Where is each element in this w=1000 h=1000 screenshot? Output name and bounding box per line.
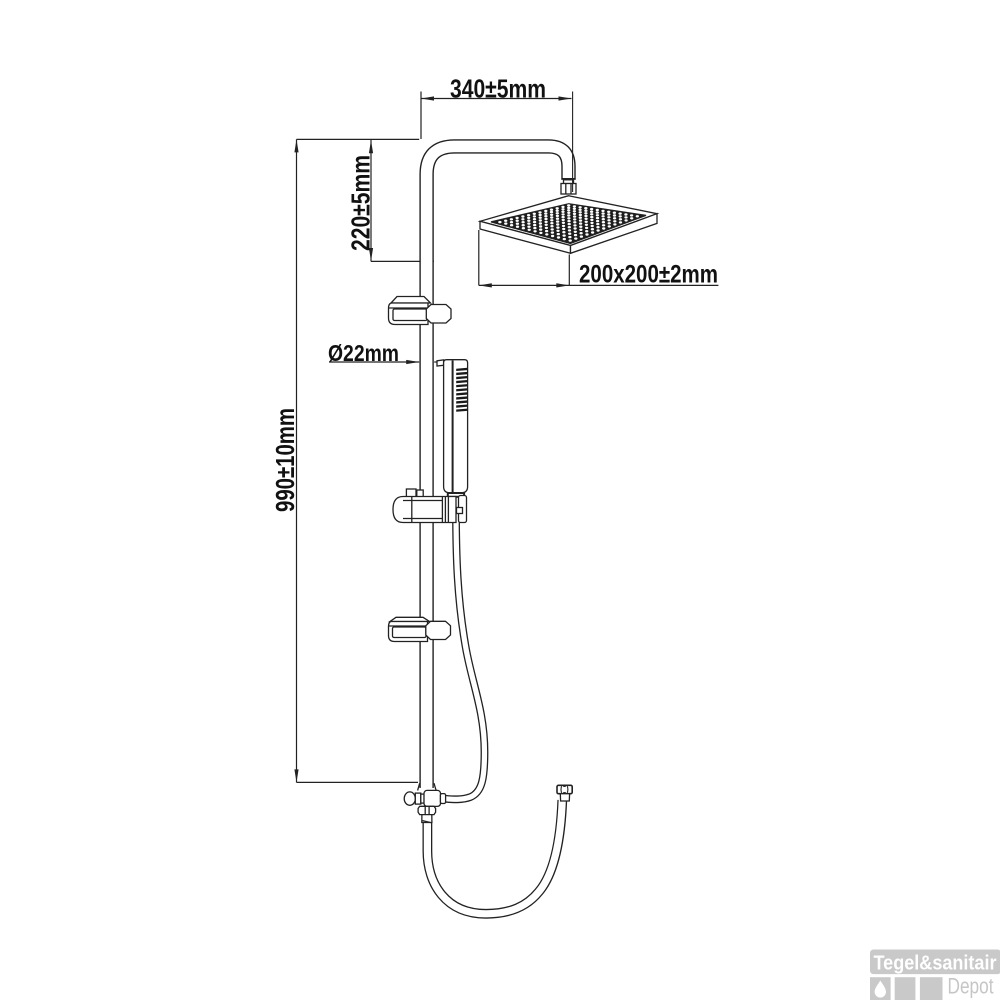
svg-text:990±10mm: 990±10mm <box>270 408 300 512</box>
svg-text:Ø22mm: Ø22mm <box>328 340 399 366</box>
svg-text:Depot: Depot <box>948 973 994 998</box>
svg-text:340±5mm: 340±5mm <box>450 74 546 104</box>
svg-text:220±5mm: 220±5mm <box>346 155 376 251</box>
svg-text:200x200±2mm: 200x200±2mm <box>579 260 718 288</box>
svg-text:Tegel&sanitair: Tegel&sanitair <box>874 952 997 975</box>
